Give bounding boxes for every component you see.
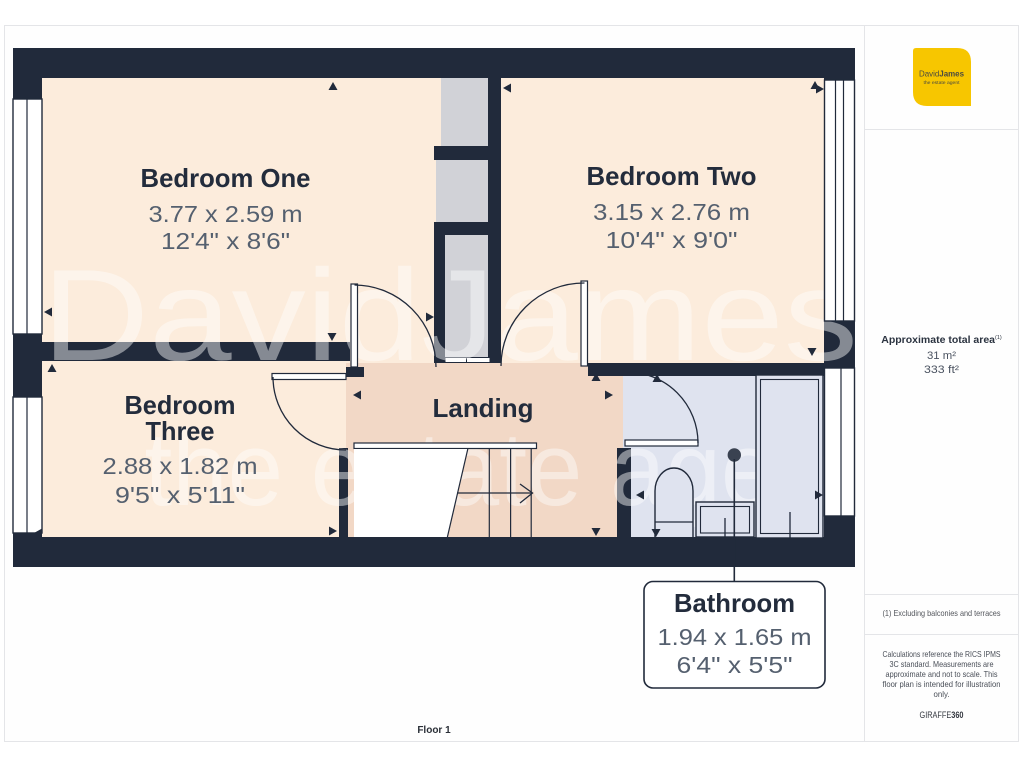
svg-text:10'4" x 9'0": 10'4" x 9'0" <box>606 227 738 253</box>
svg-text:Bathroom: Bathroom <box>674 588 795 618</box>
svg-text:Landing: Landing <box>433 393 534 423</box>
svg-text:3.77 x 2.59 m: 3.77 x 2.59 m <box>149 201 303 227</box>
svg-text:Three: Three <box>146 416 215 446</box>
svg-text:333 ft²: 333 ft² <box>924 364 959 376</box>
svg-text:DavidJames: DavidJames <box>919 70 964 79</box>
svg-text:Approximate total area(1): Approximate total area(1) <box>881 334 1002 346</box>
svg-text:DavidJames: DavidJames <box>42 242 858 388</box>
svg-text:GIRAFFE360: GIRAFFE360 <box>920 710 964 720</box>
svg-text:2.88 x 1.82 m: 2.88 x 1.82 m <box>103 453 258 479</box>
svg-text:floor plan is intended for ill: floor plan is intended for illustration <box>883 679 1001 689</box>
svg-text:6'4" x 5'5": 6'4" x 5'5" <box>677 652 793 678</box>
svg-text:the estate agent: the estate agent <box>924 80 961 86</box>
svg-text:31 m²: 31 m² <box>927 350 956 362</box>
svg-text:Floor 1: Floor 1 <box>417 725 451 736</box>
svg-text:only.: only. <box>934 689 950 699</box>
svg-text:3.15 x 2.76 m: 3.15 x 2.76 m <box>593 199 750 225</box>
svg-text:3C standard. Measurements are: 3C standard. Measurements are <box>890 659 994 669</box>
svg-text:9'5" x 5'11": 9'5" x 5'11" <box>115 482 245 508</box>
svg-text:Calculations reference the RIC: Calculations reference the RICS IPMS <box>883 649 1001 659</box>
svg-text:Bedroom One: Bedroom One <box>141 163 311 193</box>
svg-text:1.94 x 1.65 m: 1.94 x 1.65 m <box>658 624 812 650</box>
svg-text:Bedroom Two: Bedroom Two <box>587 161 757 191</box>
svg-text:(1) Excluding balconies and te: (1) Excluding balconies and terraces <box>883 608 1001 618</box>
svg-text:12'4" x 8'6": 12'4" x 8'6" <box>161 228 290 254</box>
svg-text:approximate and not to scale.: approximate and not to scale. This <box>886 669 998 679</box>
